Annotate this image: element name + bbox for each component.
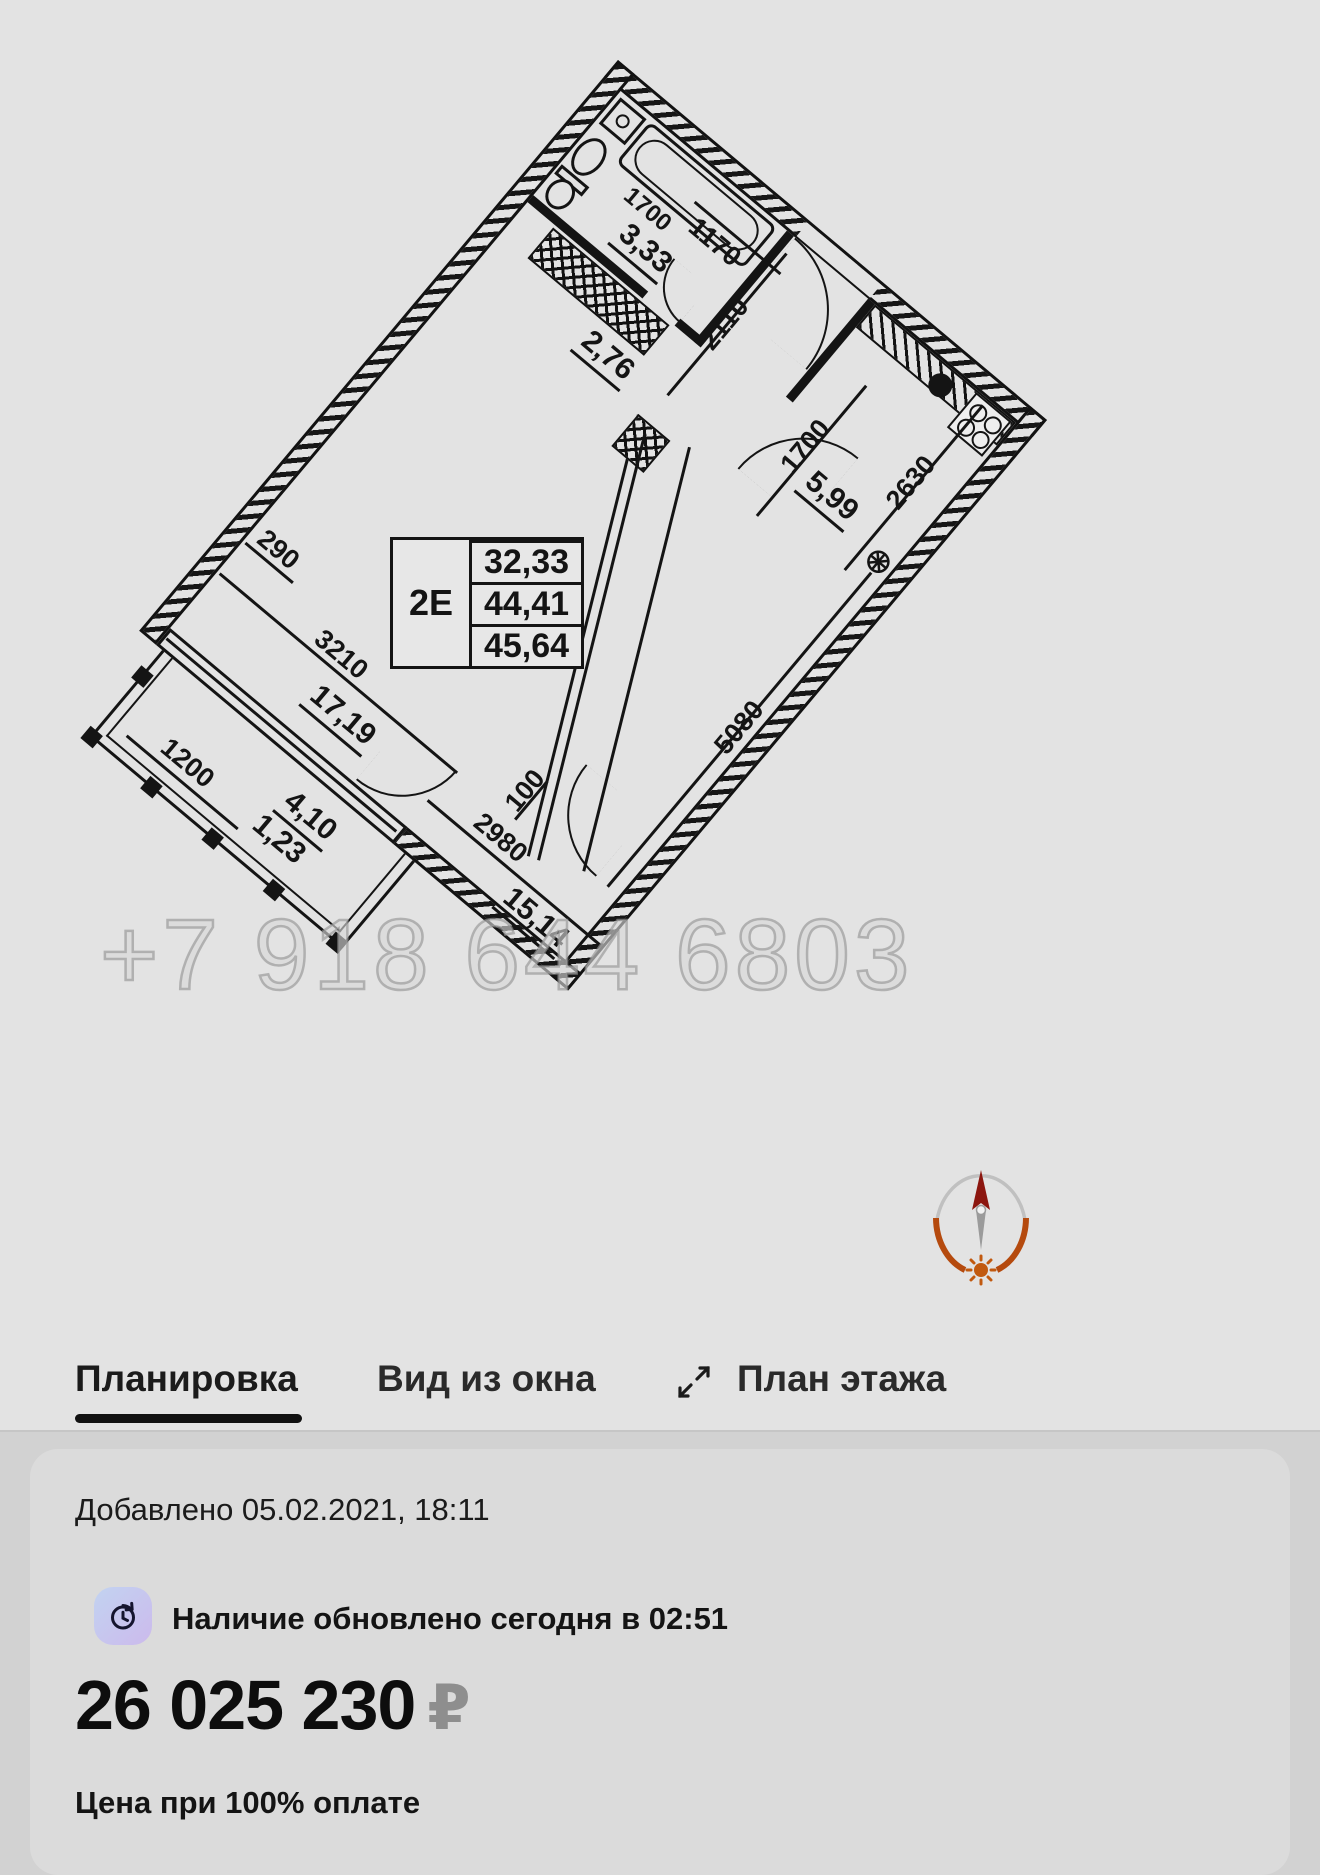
listing-screen: 3,33 2,76 5,99 17,19 15,14 4,10 1,23 170… — [0, 0, 1320, 1875]
watermark-phone: +7 918 644 6803 — [100, 898, 914, 1013]
tab-planirovka[interactable]: Планировка — [75, 1358, 298, 1400]
floorplan-image[interactable]: 3,33 2,76 5,99 17,19 15,14 4,10 1,23 170… — [0, 0, 1320, 1340]
unit-type: 2Е — [393, 540, 469, 666]
dim-label-2630: 2630 — [881, 451, 940, 514]
price-note: Цена при 100% оплате — [75, 1785, 420, 1821]
unit-living-area: 32,33 — [469, 540, 581, 582]
expand-icon — [672, 1360, 716, 1404]
unit-total-area: 45,64 — [469, 624, 581, 666]
ruble-sign: ₽ — [427, 1671, 469, 1744]
sun-icon — [967, 1256, 995, 1284]
price-card: Добавлено 05.02.2021, 18:11 Наличие обно… — [30, 1449, 1290, 1875]
tab-bar: Планировка Вид из окна План этажа — [0, 1352, 1320, 1430]
tab-vid-iz-okna[interactable]: Вид из окна — [377, 1358, 596, 1400]
availability-text: Наличие обновлено сегодня в 02:51 — [172, 1601, 728, 1637]
active-tab-underline — [75, 1414, 302, 1423]
unit-area: 44,41 — [469, 582, 581, 624]
price-number: 26 025 230 — [75, 1666, 415, 1744]
dim-label-290: 290 — [252, 525, 304, 575]
balcony-rail — [90, 650, 164, 738]
compass-icon — [925, 1146, 1037, 1288]
dim-label-100: 100 — [500, 765, 550, 817]
availability-clock-icon — [94, 1587, 152, 1645]
dim-label-2110: 2110 — [696, 293, 754, 355]
price-value: 26 025 230₽ — [75, 1665, 469, 1745]
unit-info-table: 2Е 32,33 44,41 45,64 — [390, 537, 584, 669]
floorplan-drawing: 3,33 2,76 5,99 17,19 15,14 4,10 1,23 170… — [139, 60, 1047, 991]
date-added: Добавлено 05.02.2021, 18:11 — [75, 1492, 490, 1528]
tab-plan-etazha[interactable]: План этажа — [737, 1358, 946, 1400]
